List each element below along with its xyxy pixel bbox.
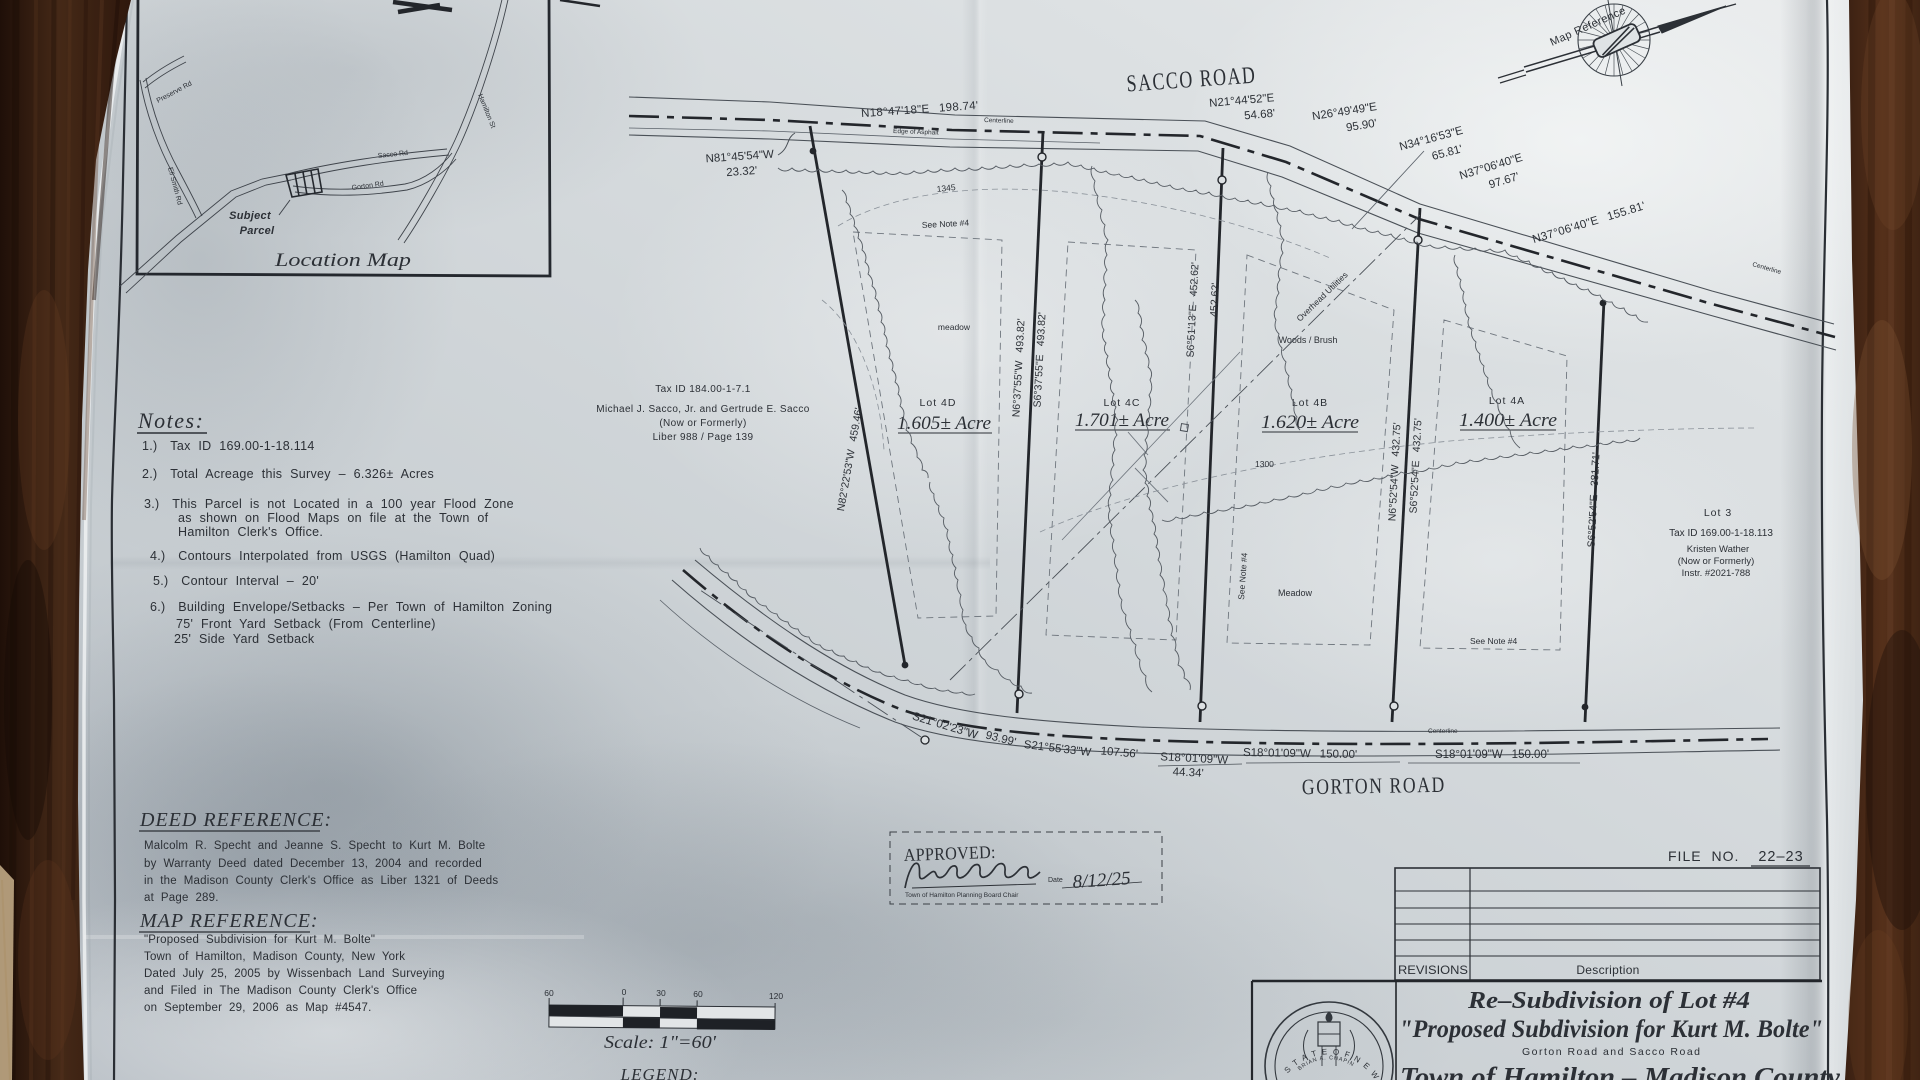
- svg-text:25' Side Yard Setback: 25' Side Yard Setback: [174, 632, 315, 646]
- svg-text:75' Front Yard Setback (From C: 75' Front Yard Setback (From Centerline): [176, 617, 436, 631]
- svg-text:1.) Tax ID 169.00-1-18.114: 1.) Tax ID 169.00-1-18.114: [142, 439, 315, 453]
- svg-text:4.) Contours Interpolated from: 4.) Contours Interpolated from USGS (Ham…: [150, 549, 495, 563]
- svg-text:Centerline: Centerline: [1428, 728, 1458, 735]
- svg-text:Lot 4B: Lot 4B: [1292, 397, 1328, 409]
- svg-text:Lot 3: Lot 3: [1704, 507, 1732, 519]
- svg-text:APPROVED:: APPROVED:: [903, 842, 996, 865]
- svg-text:at Page 289.: at Page 289.: [144, 892, 219, 904]
- svg-text:LEGEND:: LEGEND:: [620, 1065, 700, 1080]
- svg-text:FILE NO.: FILE NO.: [1668, 848, 1739, 864]
- svg-text:Hamilton Clerk's Office.: Hamilton Clerk's Office.: [178, 525, 323, 539]
- svg-text:Kristen Wather: Kristen Wather: [1687, 544, 1749, 555]
- svg-text:8/12/25: 8/12/25: [1072, 868, 1131, 893]
- svg-text:"Proposed Subdivision for Kurt: "Proposed Subdivision for Kurt M. Bolte": [144, 934, 375, 946]
- svg-text:meadow: meadow: [938, 322, 971, 332]
- svg-text:5.) Contour Interval – 20': 5.) Contour Interval – 20': [153, 574, 319, 588]
- svg-text:Dated July 25, 2005 by Wissenb: Dated July 25, 2005 by Wissenbach Land S…: [144, 968, 445, 980]
- svg-text:Michael J. Sacco, Jr. and Gert: Michael J. Sacco, Jr. and Gertrude E. Sa…: [596, 404, 809, 415]
- svg-text:See Note #4: See Note #4: [1470, 636, 1518, 646]
- svg-text:(Now or Formerly): (Now or Formerly): [1678, 556, 1755, 567]
- svg-text:6.) Building Envelope/Setbacks: 6.) Building Envelope/Setbacks – Per Tow…: [150, 600, 552, 614]
- svg-text:"Proposed Subdivision for Kurt: "Proposed Subdivision for Kurt M. Bolte": [1399, 1016, 1823, 1043]
- svg-text:Town of Hamilton, Madison Coun: Town of Hamilton, Madison County, New Yo…: [144, 951, 405, 963]
- svg-text:Town of Hamilton – Madison Cou: Town of Hamilton – Madison County: [1400, 1062, 1841, 1080]
- svg-text:Lot 4C: Lot 4C: [1104, 397, 1141, 409]
- svg-text:Scale: 1"=60': Scale: 1"=60': [604, 1032, 717, 1052]
- svg-text:1.605± Acre: 1.605± Acre: [897, 413, 991, 434]
- svg-text:(Now or Formerly): (Now or Formerly): [659, 418, 746, 429]
- svg-text:30: 30: [656, 988, 666, 998]
- svg-text:Woods / Brush: Woods / Brush: [1279, 335, 1338, 345]
- svg-text:Instr. #2021-788: Instr. #2021-788: [1682, 568, 1751, 579]
- svg-text:22–23: 22–23: [1758, 849, 1803, 865]
- svg-text:60: 60: [693, 989, 703, 999]
- svg-text:GORTON ROAD: GORTON ROAD: [1302, 772, 1446, 800]
- svg-text:452.62': 452.62': [1208, 282, 1222, 317]
- svg-text:0: 0: [622, 987, 627, 997]
- svg-text:Location Map: Location Map: [274, 250, 411, 271]
- svg-text:and Filed in The Madison Count: and Filed in The Madison County Clerk's …: [144, 985, 417, 997]
- svg-text:Liber 988 / Page 139: Liber 988 / Page 139: [653, 432, 754, 443]
- svg-text:23.32': 23.32': [726, 165, 758, 179]
- svg-text:on September 29, 2006 as Map #: on September 29, 2006 as Map #4547.: [144, 1002, 371, 1014]
- svg-text:3.) This Parcel is not Located: 3.) This Parcel is not Located in a 100 …: [144, 497, 514, 511]
- svg-text:Centerline: Centerline: [984, 117, 1014, 125]
- svg-text:Re–Subdivision of Lot #4: Re–Subdivision of Lot #4: [1467, 988, 1750, 1014]
- svg-text:Gorton Road and Sacco Road: Gorton Road and Sacco Road: [1522, 1046, 1700, 1058]
- svg-text:1.620± Acre: 1.620± Acre: [1261, 412, 1359, 433]
- svg-text:120: 120: [769, 991, 783, 1001]
- svg-text:1300: 1300: [1255, 459, 1274, 469]
- svg-text:Parcel: Parcel: [240, 225, 275, 237]
- svg-text:Description: Description: [1576, 963, 1639, 977]
- svg-text:60: 60: [544, 988, 554, 998]
- svg-text:Malcolm R. Specht and Jeanne S: Malcolm R. Specht and Jeanne S. Specht t…: [144, 840, 485, 852]
- svg-text:1345: 1345: [936, 182, 956, 194]
- svg-text:44.34': 44.34': [1172, 766, 1204, 780]
- svg-text:as shown on Flood Maps on file: as shown on Flood Maps on file at the To…: [178, 511, 489, 525]
- svg-text:Town of Hamilton Planning Boar: Town of Hamilton Planning Board Chair: [905, 892, 1019, 899]
- svg-text:Subject: Subject: [229, 210, 272, 222]
- svg-text:Date: Date: [1048, 877, 1063, 884]
- svg-text:2.) Total Acreage this Survey: 2.) Total Acreage this Survey – 6.326± A…: [142, 467, 434, 481]
- svg-text:Tax ID 184.00-1-7.1: Tax ID 184.00-1-7.1: [655, 384, 750, 395]
- svg-text:Meadow: Meadow: [1278, 588, 1313, 598]
- svg-text:DEED REFERENCE:: DEED REFERENCE:: [139, 809, 332, 831]
- svg-text:Lot 4D: Lot 4D: [920, 397, 957, 409]
- svg-text:REVISIONS: REVISIONS: [1398, 963, 1468, 977]
- svg-text:S18°01'09"W 150.00': S18°01'09"W 150.00': [1243, 747, 1357, 761]
- svg-text:Lot 4A: Lot 4A: [1489, 395, 1525, 407]
- svg-text:Tax ID 169.00-1-18.113: Tax ID 169.00-1-18.113: [1669, 528, 1773, 539]
- svg-text:MAP REFERENCE:: MAP REFERENCE:: [139, 910, 319, 932]
- svg-text:Notes:: Notes:: [137, 408, 204, 433]
- svg-text:in the Madison County Clerk's: in the Madison County Clerk's Office as …: [144, 875, 498, 887]
- svg-text:S18°01'09"W 150.00': S18°01'09"W 150.00': [1435, 749, 1549, 761]
- svg-text:by Warranty Deed dated Decembe: by Warranty Deed dated December 13, 2004…: [144, 858, 482, 870]
- svg-text:1.701± Acre: 1.701± Acre: [1075, 410, 1169, 431]
